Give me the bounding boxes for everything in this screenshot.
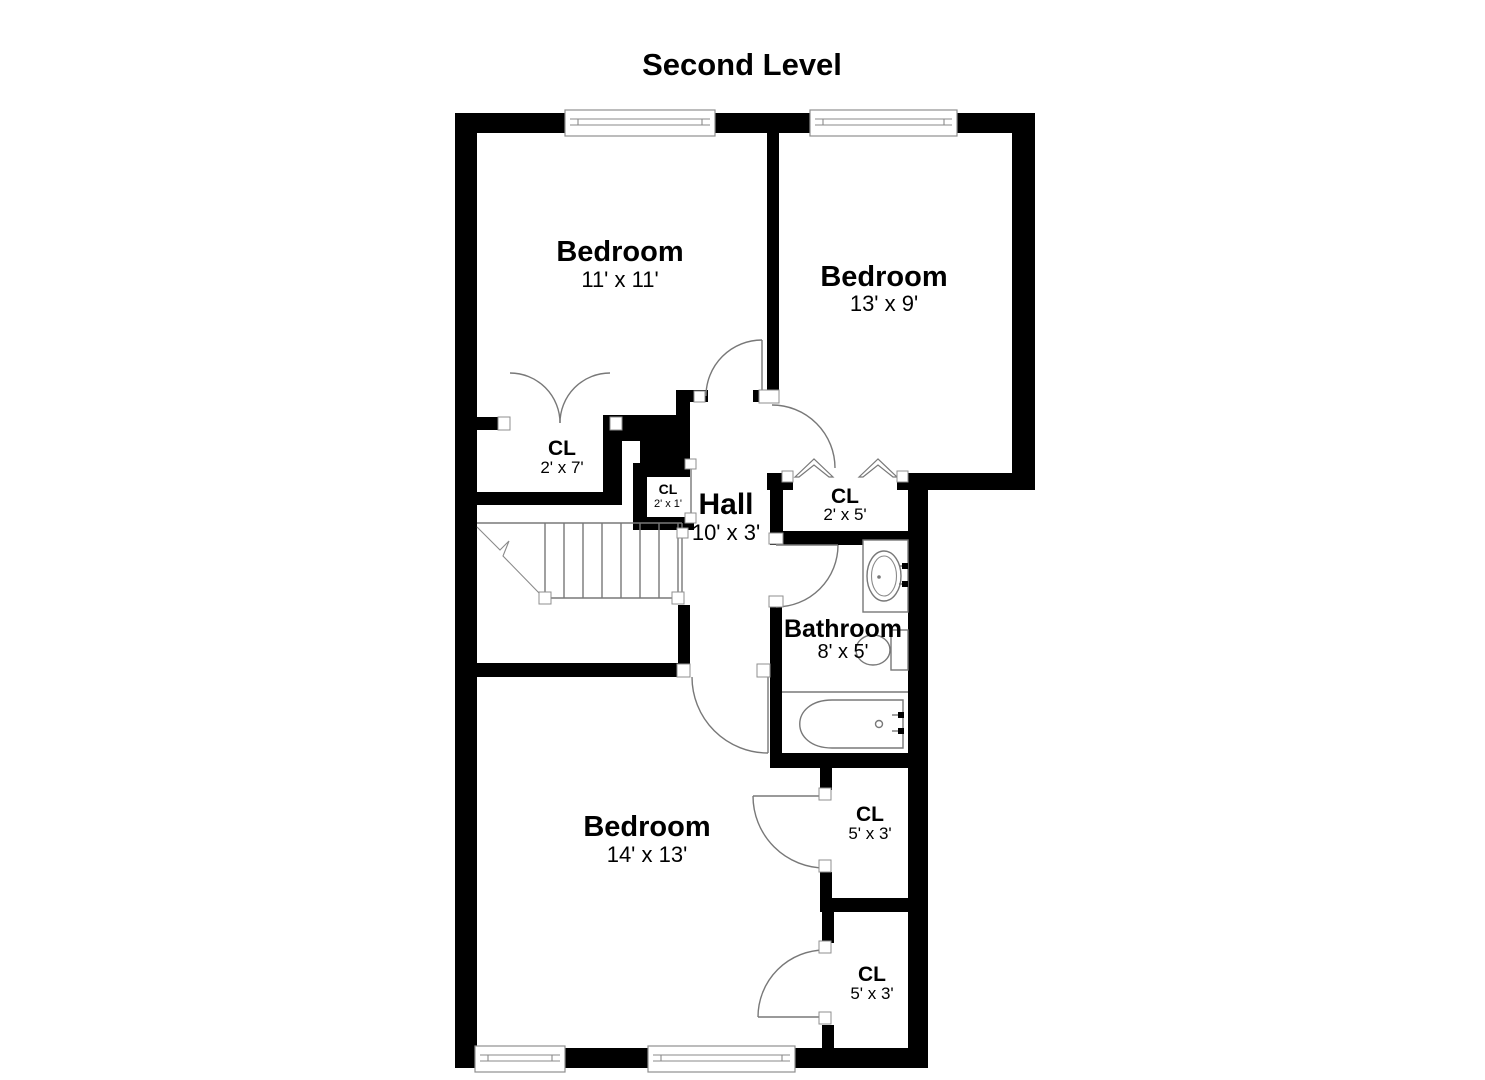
bifold-doors-closet-2x5 [795,459,897,477]
room-dims-closet-2x7: 2' x 7' [540,458,583,477]
walls [455,113,1035,1068]
stair-newel-post [672,592,684,604]
room-label-bedroom-top-left: Bedroom [556,236,683,268]
stair-newel-post [539,592,551,604]
window [475,1046,565,1072]
door-bedroom-top-right [772,405,835,468]
room-dims-bathroom: 8' x 5' [818,641,869,663]
bathroom-sink [863,540,908,612]
room-label-hall: Hall [698,488,753,521]
room-dims-closet-upper-5x3: 5' x 3' [848,824,891,843]
door-closet-upper-5x3 [753,796,825,868]
room-dims-closet-2x1: 2' x 1' [654,498,682,510]
door-bathroom [776,545,838,607]
room-dims-bedroom-top-left: 11' x 11' [581,267,658,292]
stair-direction-line [477,527,541,595]
bathtub [782,692,908,748]
double-door-closet-2x7 [510,373,610,423]
floor-plan-canvas: Second Level Bedroom 11' x 11' Bedroom 1… [0,0,1485,1080]
room-label-bedroom-top-right: Bedroom [820,261,947,293]
door-bedroom-top-left [706,340,762,396]
door-bedroom-bottom [692,677,768,753]
room-label-bathroom: Bathroom [784,615,902,643]
room-label-bedroom-bottom: Bedroom [583,811,710,843]
room-label-closet-2x1: CL [659,481,678,497]
room-dims-closet-lower-5x3: 5' x 3' [850,984,893,1003]
room-dims-bedroom-bottom: 14' x 13' [607,842,688,867]
window [565,110,715,136]
room-dims-closet-2x5: 2' x 5' [823,505,866,524]
room-dims-hall: 10' x 3' [692,520,760,545]
room-label-closet-2x7: CL [548,437,576,460]
window [810,110,957,136]
floor-plan-page: Second Level Bedroom 11' x 11' Bedroom 1… [0,0,1485,1080]
door-closet-lower-5x3 [758,950,825,1017]
room-label-closet-lower-5x3: CL [858,963,886,986]
staircase [477,523,682,598]
room-dims-bedroom-top-right: 13' x 9' [850,291,918,316]
room-label-closet-upper-5x3: CL [856,803,884,826]
window [648,1046,795,1072]
page-title: Second Level [642,47,842,82]
